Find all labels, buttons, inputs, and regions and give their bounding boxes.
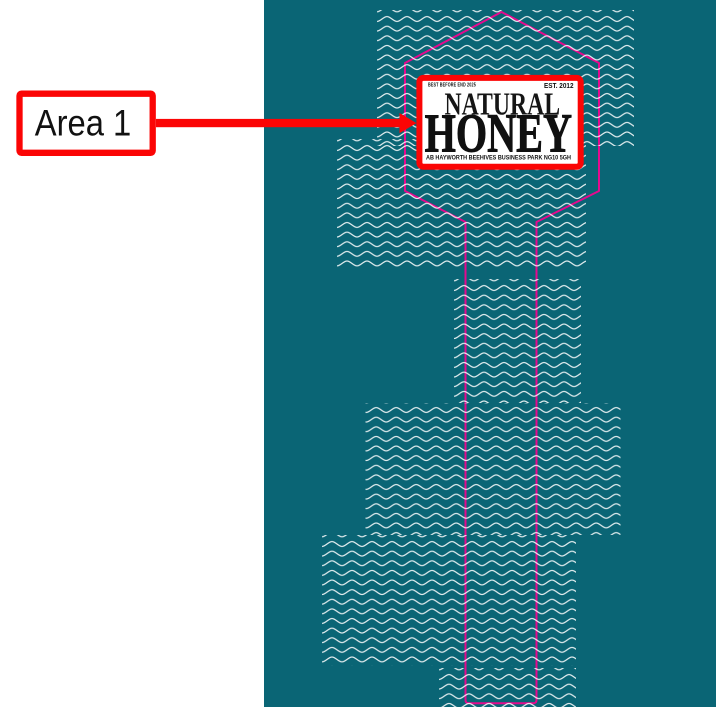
svg-text:Area 1: Area 1 — [35, 102, 132, 143]
svg-text:AB HAYWORTH BEEHIVES BUSINESS: AB HAYWORTH BEEHIVES BUSINESS PARK NG10 … — [426, 155, 571, 162]
